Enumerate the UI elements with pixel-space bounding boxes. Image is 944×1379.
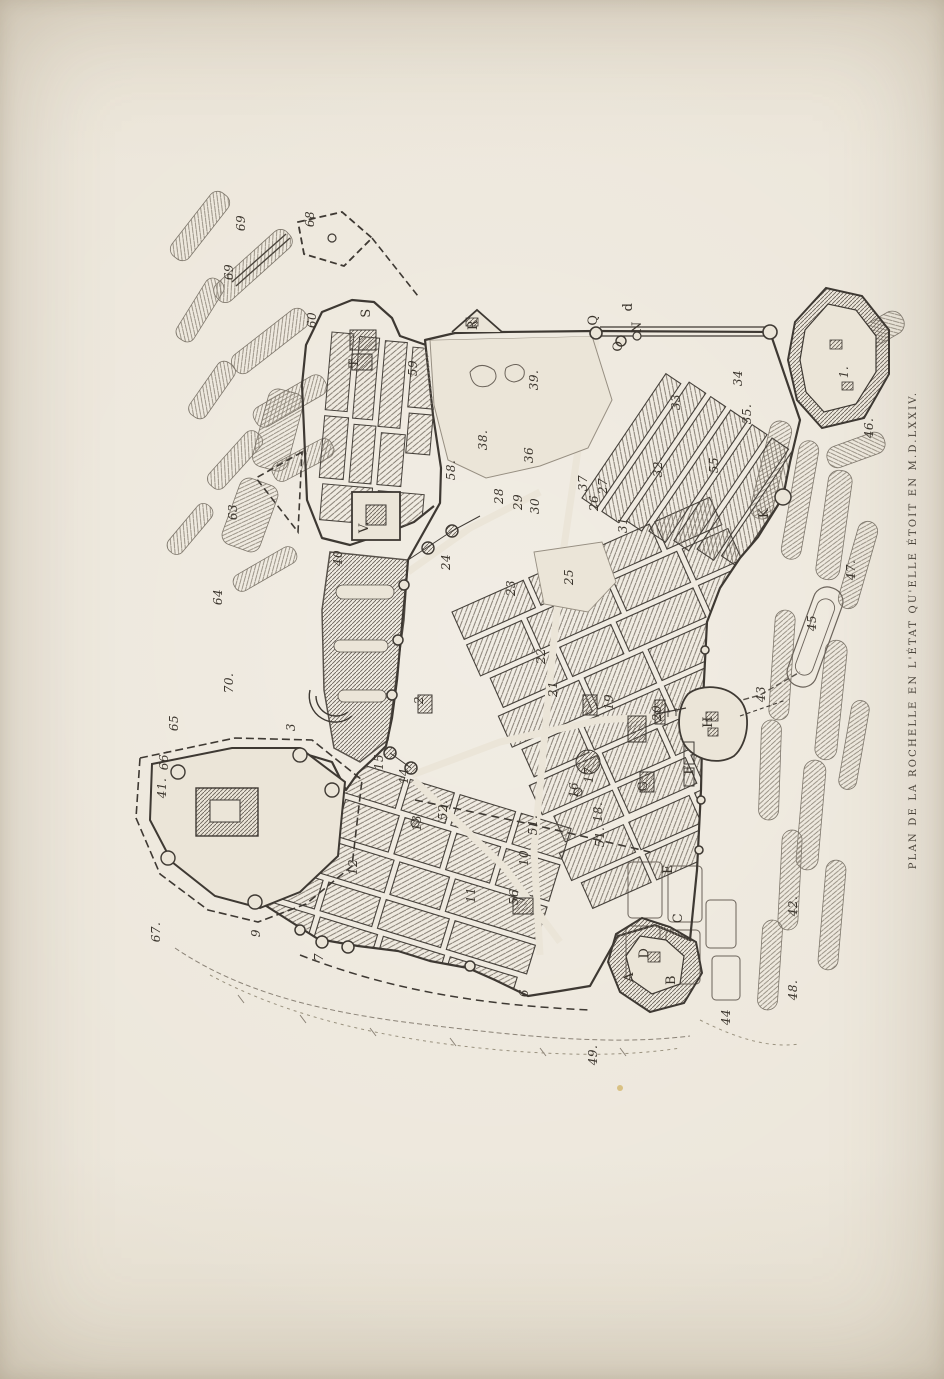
city-block bbox=[319, 416, 348, 480]
map-label-11: 11 bbox=[464, 887, 478, 903]
map-label-16: 16 bbox=[567, 782, 581, 798]
map-label-48: 48. bbox=[786, 980, 800, 1002]
map-label-27: 27 bbox=[596, 478, 610, 495]
map-label-3: 3 bbox=[284, 723, 298, 731]
map-label-31: 31 bbox=[616, 517, 630, 533]
city-block bbox=[377, 433, 405, 487]
map-label-65: 65 bbox=[167, 715, 181, 731]
map-label-G: G bbox=[636, 781, 651, 792]
citadel-tower bbox=[248, 895, 262, 909]
salt-pan bbox=[706, 900, 736, 948]
map-label-C: C bbox=[671, 913, 686, 923]
marsh-strip bbox=[185, 358, 238, 422]
map-label-41: 41. bbox=[155, 778, 169, 800]
harbor-quay bbox=[338, 690, 386, 702]
map-label-67: 67. bbox=[149, 922, 163, 943]
map-label-29: 29 bbox=[511, 494, 525, 511]
harbor-quay bbox=[334, 640, 388, 652]
map-label-S: S bbox=[359, 308, 374, 317]
map-label-55: 55 bbox=[707, 457, 721, 473]
map-label-66: 66. bbox=[157, 750, 171, 771]
map-label-2: 2 bbox=[412, 696, 426, 705]
entrance-boom bbox=[408, 516, 480, 560]
map-label-35: 35. bbox=[740, 404, 754, 425]
map-label-51: 51. bbox=[593, 827, 607, 848]
map-label-44: 44 bbox=[719, 1009, 733, 1026]
map-label-B: B bbox=[664, 975, 679, 985]
map-label-25: 25 bbox=[562, 569, 576, 586]
map-label-18: 18. bbox=[591, 802, 605, 823]
marsh-strip bbox=[173, 275, 227, 345]
map-label-23: 23 bbox=[504, 580, 518, 597]
map-label-51: 51. bbox=[526, 815, 540, 836]
map-label-6: 6 bbox=[517, 989, 531, 997]
map-label-21: 21 bbox=[546, 681, 560, 698]
marsh-strip bbox=[758, 720, 781, 821]
harbor-quay bbox=[336, 585, 394, 599]
city-block bbox=[406, 413, 433, 455]
city-block bbox=[390, 862, 450, 910]
wall-tower bbox=[701, 646, 709, 654]
shore-line bbox=[210, 975, 680, 1054]
northeast-star-fort bbox=[788, 288, 889, 428]
map-label-V: V. bbox=[357, 521, 372, 534]
map-label-32: 32. bbox=[651, 457, 665, 478]
map-label-34: 34 bbox=[731, 370, 745, 386]
map-label-K: K bbox=[757, 508, 772, 518]
map-label-33: 33 bbox=[669, 394, 683, 410]
map-label-47: 47. bbox=[844, 560, 858, 582]
map-label-60: 60 bbox=[305, 312, 319, 328]
map-label-30: 30 bbox=[528, 498, 542, 514]
jetty-tower bbox=[763, 325, 777, 339]
wall-tower bbox=[316, 936, 328, 948]
marsh-strip bbox=[814, 639, 848, 761]
marsh-strip bbox=[164, 500, 216, 558]
engraved-map-plan-la-rochelle: 696968605958.TSRV.QdNO636470.6566.41.67.… bbox=[0, 0, 944, 1379]
wall-tower bbox=[342, 941, 354, 953]
paper-speck bbox=[617, 1085, 623, 1091]
marsh-strip bbox=[167, 188, 234, 265]
wall-tower bbox=[695, 846, 703, 854]
wall-tower bbox=[393, 635, 403, 645]
map-label-10: 10 bbox=[517, 850, 531, 866]
map-label-T: T bbox=[347, 358, 362, 367]
map-label-12: 12 bbox=[346, 859, 360, 875]
map-label-13: 13 bbox=[410, 815, 424, 831]
map-label-45: 45 bbox=[805, 615, 819, 632]
map-label-52: 52. bbox=[436, 800, 450, 821]
city-block bbox=[378, 341, 407, 429]
fort-keep bbox=[350, 330, 376, 350]
city-block bbox=[349, 424, 376, 484]
outer-dike-dashed bbox=[372, 238, 418, 296]
map-label-14: 14 bbox=[397, 768, 411, 784]
open-field bbox=[430, 336, 612, 478]
map-label-70: 70. bbox=[222, 673, 236, 694]
map-label-40: 40 bbox=[331, 550, 345, 567]
marsh-strip bbox=[230, 544, 300, 595]
map-label-D: D bbox=[637, 948, 652, 959]
wall-tower bbox=[295, 925, 305, 935]
map-label-20: 20 bbox=[650, 705, 664, 722]
map-label-63: 63 bbox=[226, 504, 240, 520]
city-block bbox=[718, 596, 783, 650]
map-label-7: 7 bbox=[312, 953, 326, 961]
southeast-bastion-fort bbox=[608, 918, 702, 1012]
map-label-15: 15 bbox=[372, 754, 386, 770]
map-label-69: 69 bbox=[222, 264, 236, 280]
wall-tower bbox=[387, 690, 397, 700]
citadel-court bbox=[210, 800, 240, 822]
marsh-strip bbox=[768, 609, 796, 720]
map-label-E: E bbox=[661, 864, 676, 874]
wall-tower bbox=[697, 796, 705, 804]
building bbox=[628, 716, 646, 742]
salt-pan bbox=[712, 956, 740, 1000]
outer-fort-detail bbox=[328, 234, 336, 242]
map-label-69: 69 bbox=[234, 215, 248, 231]
map-label-O: O bbox=[611, 340, 626, 351]
star-fort-building bbox=[830, 340, 842, 349]
shore-line bbox=[700, 1020, 800, 1045]
marsh-strip bbox=[228, 305, 312, 378]
city-block bbox=[335, 799, 400, 852]
map-label-42: 42. bbox=[786, 896, 800, 918]
star-fort-building bbox=[842, 382, 853, 390]
wall-tower bbox=[399, 580, 409, 590]
map-label-58: 58. bbox=[444, 460, 458, 481]
map-label-38: 38. bbox=[476, 430, 490, 451]
map-label-37: 37 bbox=[576, 475, 590, 491]
map-label-68: 68 bbox=[303, 211, 317, 227]
map-label-49: 49. bbox=[586, 1045, 600, 1067]
map-label-56: 56 bbox=[507, 889, 521, 905]
fort-h-building bbox=[708, 728, 718, 736]
grass-tufts bbox=[238, 995, 626, 1056]
citadel-tower bbox=[293, 748, 307, 762]
map-label-1: 1. bbox=[837, 366, 851, 378]
map-label-17: 17 bbox=[582, 767, 596, 783]
plate-title-vertical: PLAN DE LA ROCHELLE EN L'ÉTAT QU'ELLE ÉT… bbox=[907, 391, 919, 870]
map-label-Q: Q bbox=[586, 314, 601, 325]
marsh-strip bbox=[837, 699, 870, 791]
map-label-R: R bbox=[466, 319, 481, 330]
map-label-26: 26 bbox=[587, 495, 601, 512]
corner-tower-k bbox=[775, 489, 791, 505]
map-label-F: F bbox=[682, 765, 697, 775]
marsh-strip bbox=[817, 859, 847, 970]
map-label-9: 9 bbox=[249, 929, 263, 937]
map-label-19: 19 bbox=[602, 694, 616, 710]
harbor-chain bbox=[390, 753, 411, 768]
map-label-43: 43 bbox=[754, 686, 768, 703]
citadel-tower bbox=[171, 765, 185, 779]
harbor bbox=[322, 552, 408, 762]
map-label-N: N bbox=[630, 321, 645, 333]
citadel-tower bbox=[161, 851, 175, 865]
map-label-d: d bbox=[621, 303, 636, 312]
scanned-book-page: 696968605958.TSRV.QdNO636470.6566.41.67.… bbox=[0, 0, 944, 1379]
map-label-36: 36 bbox=[522, 447, 536, 463]
map-label-A: A bbox=[622, 972, 637, 983]
map-label-59: 59 bbox=[406, 360, 420, 376]
marsh-strip bbox=[824, 429, 888, 470]
map-label-22: 22 bbox=[534, 648, 548, 665]
map-label-46: 46. bbox=[862, 418, 876, 440]
map-label-24: 24 bbox=[439, 554, 453, 571]
harbor-basin bbox=[322, 552, 408, 762]
map-label-64: 64 bbox=[211, 589, 225, 605]
wall-tower bbox=[465, 961, 475, 971]
map-label-39: 39. bbox=[527, 370, 541, 391]
citadel-tower bbox=[325, 783, 339, 797]
gate-tower bbox=[590, 327, 602, 339]
map-label-H: H bbox=[701, 716, 716, 728]
map-label-28: 28 bbox=[492, 488, 506, 505]
marsh-strip bbox=[757, 919, 783, 1010]
building bbox=[583, 695, 597, 715]
